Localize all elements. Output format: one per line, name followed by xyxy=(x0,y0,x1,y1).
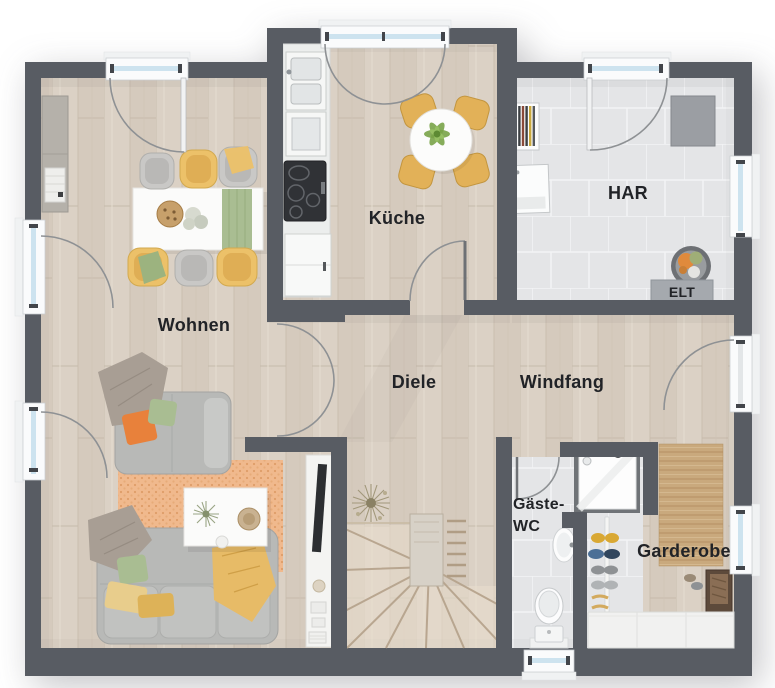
wall-stub-top xyxy=(267,300,345,322)
wall-har-bottom xyxy=(517,300,734,315)
fruit-bowl xyxy=(157,201,183,227)
door-leaf xyxy=(181,78,186,152)
wall-kueche-wohnen xyxy=(267,28,283,300)
wardrobe xyxy=(588,612,734,648)
kitchen-counter xyxy=(283,44,331,297)
pillow-green xyxy=(147,398,177,427)
sideboard xyxy=(42,96,68,212)
stair-well xyxy=(410,514,443,586)
room-label-wohnen: Wohnen xyxy=(158,315,230,335)
pillow-yellow xyxy=(137,593,175,618)
shoes xyxy=(684,574,696,582)
faucet-icon xyxy=(287,70,292,75)
wall-stairs-right xyxy=(496,437,512,648)
elt-label: ELT xyxy=(669,284,695,300)
wall-stairs-left xyxy=(331,437,347,648)
room-label-gaeste-wc-line2: WC xyxy=(513,518,540,535)
candle xyxy=(216,536,228,548)
room-label-har: HAR xyxy=(608,183,648,203)
storage-box xyxy=(671,96,715,146)
elt-box: ELT xyxy=(651,280,713,302)
coffee-table xyxy=(184,488,271,552)
room-label-kueche: Küche xyxy=(369,208,426,228)
wall-kueche-bottom-right xyxy=(464,300,497,315)
wall-wc-right xyxy=(573,512,587,648)
room-label-gaeste-wc-line1: Gäste- xyxy=(513,496,565,513)
tv-board xyxy=(306,455,333,647)
wall-garderobe xyxy=(643,442,658,515)
shoes xyxy=(691,582,703,590)
pillow-green xyxy=(116,554,148,585)
dining-table-group xyxy=(133,188,267,254)
wall-stub-bottom xyxy=(245,437,345,452)
cooktop xyxy=(284,161,326,221)
room-label-garderobe: Garderobe xyxy=(637,541,731,561)
washbasin xyxy=(553,528,575,562)
coat-bench xyxy=(706,570,732,614)
floor-plan-canvas: ELT xyxy=(0,0,775,688)
drain-icon xyxy=(583,457,591,465)
floor-plan-page: ELT xyxy=(0,0,775,688)
wall-kueche-har xyxy=(497,28,517,315)
door-leaf xyxy=(587,78,592,150)
room-label-diele: Diele xyxy=(392,372,437,392)
room-label-windfang: Windfang xyxy=(520,372,604,392)
